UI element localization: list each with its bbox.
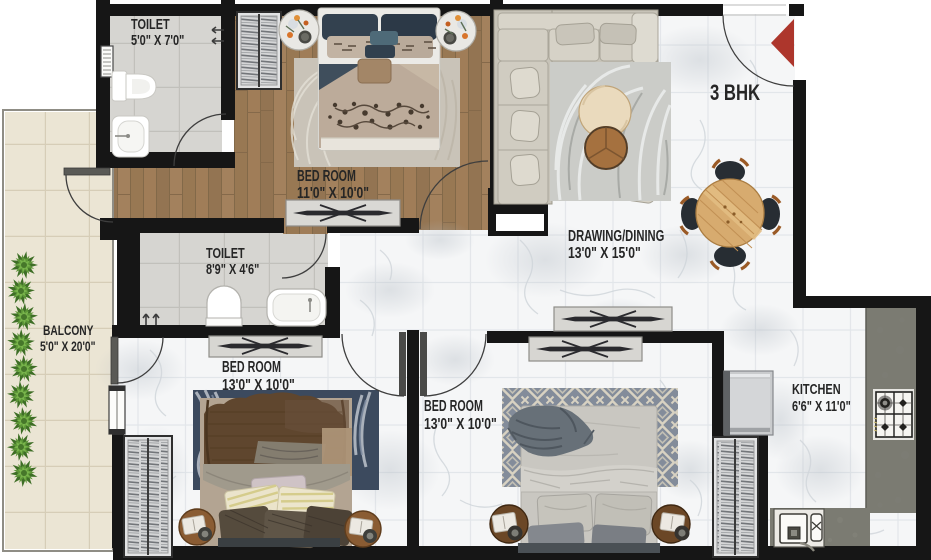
svg-text:5'0" X 7'0": 5'0" X 7'0": [131, 31, 184, 48]
svg-text:3 BHK: 3 BHK: [710, 81, 760, 106]
svg-text:BED ROOM: BED ROOM: [424, 397, 483, 415]
svg-text:6'6" X 11'0": 6'6" X 11'0": [792, 397, 851, 414]
svg-text:5'0" X 20'0": 5'0" X 20'0": [40, 338, 95, 354]
svg-text:BED ROOM: BED ROOM: [222, 358, 281, 376]
svg-text:BALCONY: BALCONY: [43, 322, 94, 338]
svg-text:DRAWING/DINING: DRAWING/DINING: [568, 226, 664, 245]
svg-text:11'0" X 10'0": 11'0" X 10'0": [297, 184, 369, 202]
svg-text:13'0" X 10'0": 13'0" X 10'0": [222, 376, 295, 394]
svg-text:TOILET: TOILET: [131, 15, 170, 32]
svg-text:KITCHEN: KITCHEN: [792, 380, 841, 397]
svg-text:13'0" X 15'0": 13'0" X 15'0": [568, 244, 641, 262]
svg-text:TOILET: TOILET: [206, 244, 245, 261]
svg-text:8'9" X 4'6": 8'9" X 4'6": [206, 260, 259, 277]
svg-text:13'0" X 10'0": 13'0" X 10'0": [424, 415, 497, 433]
svg-text:BED ROOM: BED ROOM: [297, 167, 356, 185]
